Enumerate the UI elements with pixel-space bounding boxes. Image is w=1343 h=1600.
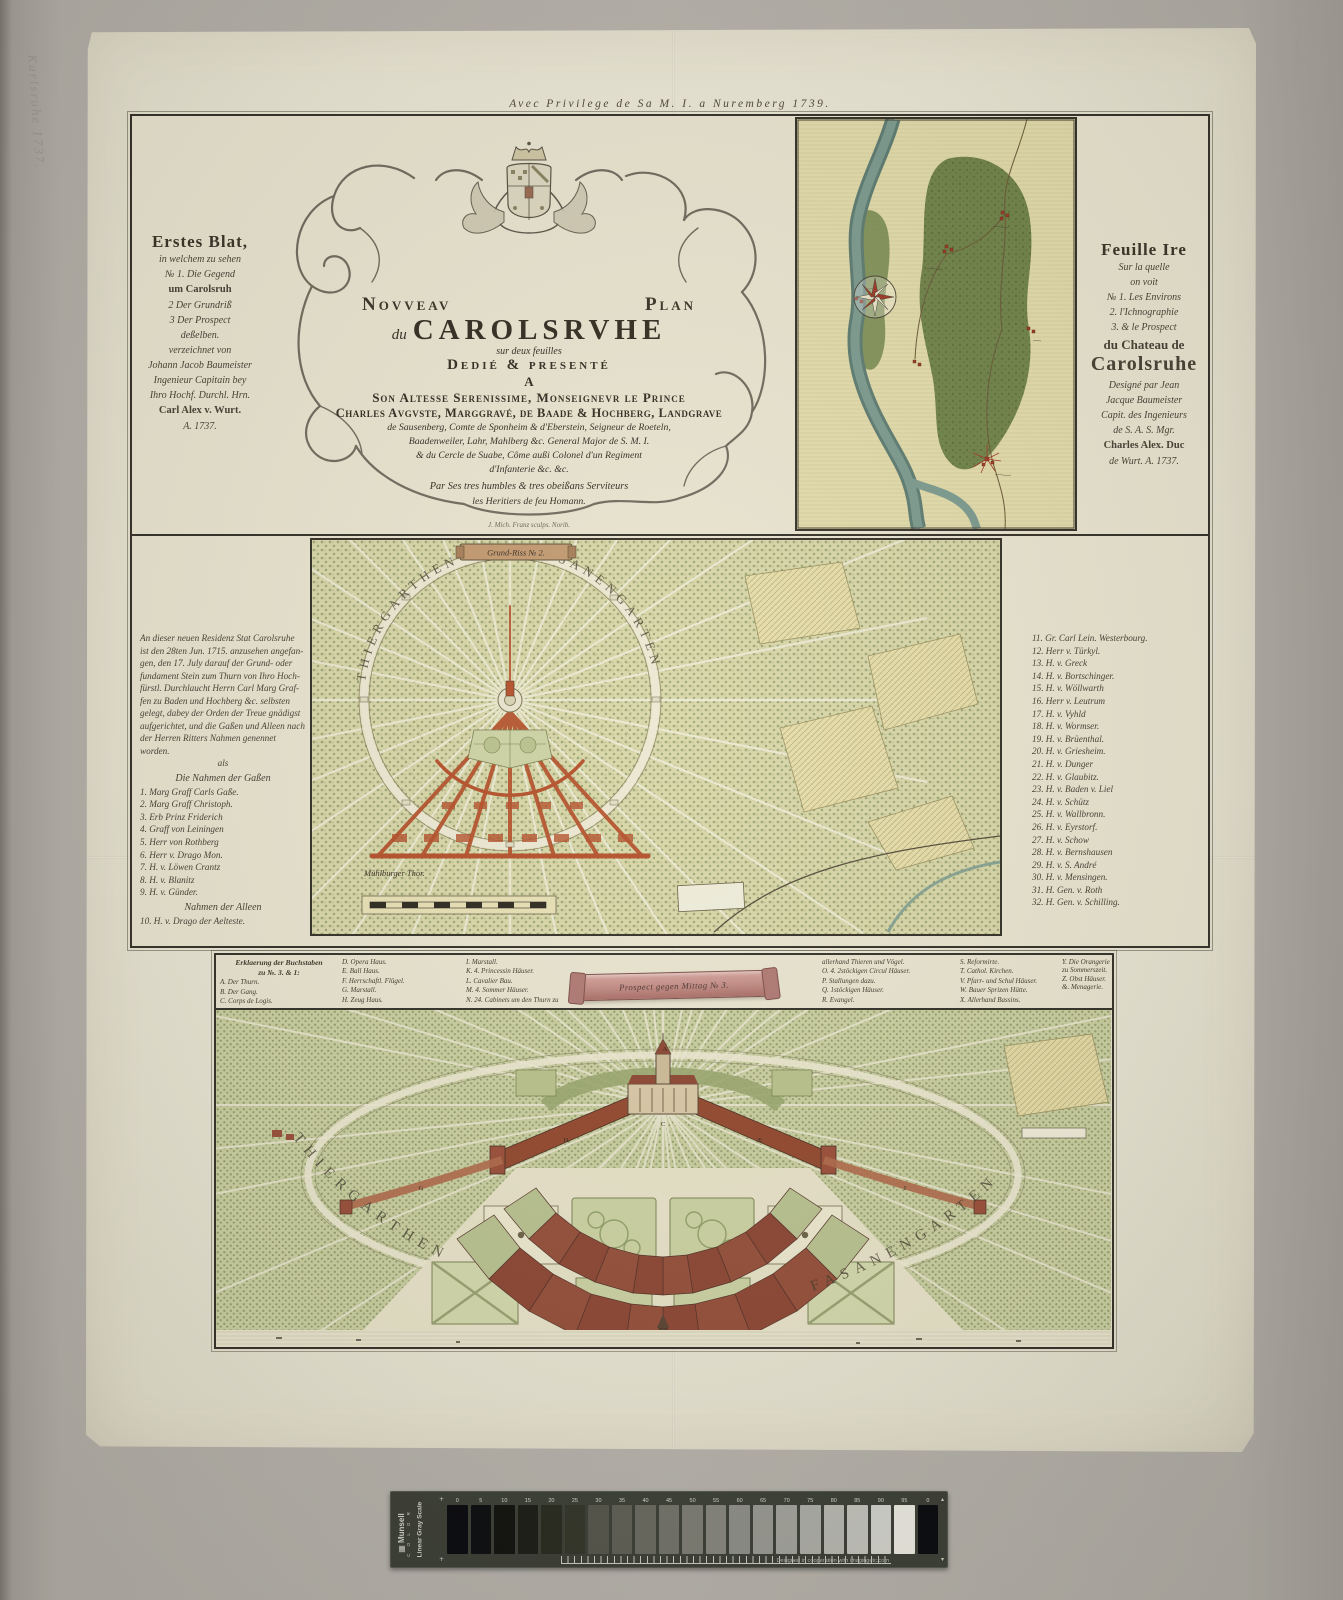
mark-colonnade-right: I — [904, 1185, 906, 1192]
list-item: 6. Herr v. Drago Mon. — [140, 849, 306, 862]
list-item: 15. H. v. Wöllwarth — [1032, 682, 1204, 695]
legend-item: A. Der Thurn. — [220, 978, 338, 987]
note-line: 3. & le Prospect — [1082, 320, 1206, 335]
mark-corps: C — [661, 1121, 665, 1128]
list-item: 18. H. v. Wormser. — [1032, 720, 1204, 733]
orangerie — [1022, 1128, 1086, 1138]
note-line: on voit — [1082, 275, 1206, 290]
legend-item: Q. 1stöckigen Häuser. — [822, 986, 958, 995]
list-item: 2. Marg Graff Christoph. — [140, 798, 306, 811]
credit-line: Designed in cooperation with imagingetc.… — [776, 1558, 889, 1564]
list-item: 28. H. v. Bernshausen — [1032, 846, 1204, 859]
list-item: 25. H. v. Wallbronn. — [1032, 808, 1204, 821]
alley-list-title: Nahmen der Alleen — [140, 902, 306, 913]
ribbon-label: Prospect gegen Mittag № 3. — [619, 979, 729, 992]
list-item: 27. H. v. Schow — [1032, 834, 1204, 847]
engraver-signature: J. Mich. Franz sculps. Norib. — [264, 521, 794, 529]
gray-patch: 80 — [824, 1497, 845, 1554]
note-line: 2 Der Grundriß — [136, 298, 264, 313]
legend-item: B. Der Gang. — [220, 988, 338, 997]
note-line: de S. A. S. Mgr. — [1082, 423, 1206, 438]
list-item: 30. H. v. Mensingen. — [1032, 871, 1204, 884]
privilege-line: Avec Privilege de Sa M. I. a Nuremberg 1… — [130, 98, 1210, 110]
dedication-a: A — [304, 374, 754, 390]
note-line: № 1. Les Environs — [1082, 290, 1206, 305]
legend-title: Erklaerung der Buchstaben — [220, 958, 338, 968]
list-item: 23. H. v. Baden v. Liel — [1032, 783, 1204, 796]
legend-col-5: S. Reformirte. T. Cathol. Kirchen. V. Pf… — [960, 958, 1072, 1005]
list-item: 24. H. v. Schütz — [1032, 796, 1204, 809]
legend-col-1: Erklaerung der Buchstaben zu №. 3. & 1: … — [220, 958, 338, 1006]
list-item: 17. H. v. Vyhld — [1032, 708, 1204, 721]
plan-panel: An dieser neuen Residenz Stat Carolsruhe… — [132, 536, 1208, 944]
legend-item: O. 4. 2stöckigen Circul Häuser. — [822, 967, 958, 976]
legend-item: I. Marstall. — [466, 958, 596, 967]
list-item: 9. H. v. Günder. — [140, 886, 306, 899]
note-line: Johann Jacob Baumeister — [136, 358, 264, 373]
street-list-title: Die Nahmen der Gaßen — [140, 773, 306, 784]
title-du: du — [392, 327, 407, 343]
legend-item: P. Stallungen dazu. — [822, 977, 958, 986]
list-item: 5. Herr von Rothberg — [140, 836, 306, 849]
legend-col-4: allerhand Thieren und Vögel. O. 4. 2stöc… — [822, 958, 958, 1005]
note-line: Charles Alex. Duc — [1082, 438, 1206, 454]
legend-item: G. Marstall. — [342, 986, 462, 995]
mark-colonnade-left: G — [419, 1185, 424, 1192]
note-line: Ihro Hochf. Durchl. Hrn. — [136, 388, 264, 403]
title-panel: Erstes Blat, in welchem zu sehen № 1. Di… — [132, 116, 1208, 536]
left-margin-note: Erstes Blat, in welchem zu sehen № 1. Di… — [136, 232, 264, 434]
note-line: Designé par Jean — [1082, 378, 1206, 393]
note-line: verzeichnet von — [136, 343, 264, 358]
legend-item: H. Zeug Haus. — [342, 996, 462, 1005]
plan-history-note: An dieser neuen Residenz Stat Carolsruhe… — [140, 632, 306, 928]
gray-patch: 40 — [635, 1497, 656, 1554]
plan-banner-label: Grund-Riss № 2. — [487, 548, 545, 558]
pencil-mark — [1286, 16, 1326, 76]
gray-patch: 75 — [800, 1497, 821, 1554]
note-line: № 1. Die Gegend — [136, 267, 264, 282]
list-item: 8. H. v. Blanitz — [140, 874, 306, 887]
note-line: Carl Alex v. Wurt. — [136, 403, 264, 419]
scale-bar — [362, 896, 556, 914]
dedication-titles: Baadenweiler, Lahr, Mahlberg &c. General… — [304, 435, 754, 449]
gray-patch: 25 — [565, 1497, 586, 1554]
legend-col-2: D. Opera Haus. E. Ball Haus. F. Herrscha… — [342, 958, 462, 1005]
note-chateau: du Chateau de — [1082, 337, 1206, 353]
gray-patches: 0 5 10 15 20 25 30 35 40 45 50 55 60 65 … — [447, 1497, 938, 1554]
legend-item: R. Evangel. — [822, 996, 958, 1005]
right-note-title: Feuille Ire — [1082, 240, 1206, 260]
list-item: 13. H. v. Greck — [1032, 657, 1204, 670]
brand-label: Munsell — [397, 1513, 406, 1543]
plan-banner: Grund-Riss № 2. — [456, 544, 576, 560]
legend-item: T. Cathol. Kirchen. — [960, 967, 1072, 976]
prospect-legend: Erklaerung der Buchstaben zu №. 3. & 1: … — [216, 955, 1112, 1010]
gray-patch: 90 — [871, 1497, 892, 1554]
legend-item: C. Corps de Logis. — [220, 997, 338, 1006]
note-line: deßelben. — [136, 328, 264, 343]
list-item: 14. H. v. Bortschinger. — [1032, 670, 1204, 683]
legend-item: E. Ball Haus. — [342, 967, 462, 976]
list-item: 3. Erb Prinz Friderich — [140, 811, 306, 824]
legend-item: W. Bauer Sprizen Hütte. — [960, 986, 1072, 995]
munsell-brand: ▦ Munsell C O L O R — [397, 1498, 411, 1568]
birdseye-prospect: A C D E G I — [216, 1010, 1111, 1346]
plate-frame-lower: Erklaerung der Buchstaben zu №. 3. & 1: … — [214, 953, 1114, 1349]
note-line: 2. l'Ichnographie — [1082, 305, 1206, 320]
list-item: 4. Graff von Leiningen — [140, 823, 306, 836]
intro-line: der Herren Ritters Nahmen genennet worde… — [140, 732, 306, 757]
legend-item: allerhand Thieren und Vögel. — [822, 958, 958, 967]
list-item: 22. H. v. Glaubitz. — [1032, 771, 1204, 784]
title-word-plan: Plan — [645, 294, 696, 316]
map-sheet: Avec Privilege de Sa M. I. a Nuremberg 1… — [86, 28, 1256, 1452]
legend-item: D. Opera Haus. — [342, 958, 462, 967]
gray-patch: 85 — [847, 1497, 868, 1554]
gray-patch: 0 — [447, 1497, 468, 1554]
gray-patch: 5 — [471, 1497, 492, 1554]
list-item: 20. H. v. Griesheim. — [1032, 745, 1204, 758]
list-item: 16. Herr v. Leutrum — [1032, 695, 1204, 708]
legend-item: F. Herrschaftl. Flügel. — [342, 977, 462, 986]
list-item: 21. H. v. Dunger — [1032, 758, 1204, 771]
intro-line: als — [140, 757, 306, 770]
gray-patch: 20 — [541, 1497, 562, 1554]
prospect-title-ribbon: Prospect gegen Mittag № 3. — [577, 970, 772, 1002]
mark-tower: A — [663, 1046, 668, 1053]
note-line: Capit. des Ingenieurs — [1082, 408, 1206, 423]
street-list: 1. Marg Graff Carls Gaße. 2. Marg Graff … — [140, 786, 306, 899]
dedication-titles: de Sausenberg, Comte de Sponheim & d'Ebe… — [304, 421, 754, 435]
list-item: 1. Marg Graff Carls Gaße. — [140, 786, 306, 799]
legend-col-6: Y. Die Orangerie zu Sommerszeit. Z. Obst… — [1062, 958, 1110, 992]
legend-item: X. Allerhand Bassins. — [960, 996, 1072, 1005]
gray-patch: 70 — [776, 1497, 797, 1554]
list-item: 7. H. v. Löwen Crantz — [140, 861, 306, 874]
list-item: 29. H. v. S. André — [1032, 859, 1204, 872]
intro-line: fundament Stein zum Thurn von Ihro Hoch- — [140, 670, 306, 683]
mark-wing-right: E — [758, 1137, 762, 1144]
gray-patch: 35 — [612, 1497, 633, 1554]
gray-patch: 55 — [706, 1497, 727, 1554]
title-carolsruhe: CAROLSRVHE — [413, 314, 667, 346]
gray-patch: 15 — [518, 1497, 539, 1554]
subtitle: sur deux feuilles — [304, 346, 754, 357]
registration-mark: + — [439, 1556, 444, 1563]
legend-item: V. Pfarr- und Schul Häuser. — [960, 977, 1072, 986]
gray-patch: 95 — [894, 1497, 915, 1554]
cartouche-text: Novveav Plan duCAROLSRVHE sur deux feuil… — [304, 294, 754, 508]
plate-frame-upper: Erstes Blat, in welchem zu sehen № 1. Di… — [130, 114, 1210, 948]
gray-scale-label: Linear Gray Scale — [417, 1495, 424, 1565]
dedication-titles: & du Cercle de Suabe, Côme außi Colonel … — [304, 449, 754, 463]
dedication-servants: Par Ses tres humbles & tres obeißans Ser… — [304, 480, 754, 495]
photo-scan: Karlsruhe 1737. Avec Privilege de Sa M. … — [0, 0, 1343, 1600]
list-item: 32. H. Gen. v. Schilling. — [1032, 896, 1204, 909]
small-plaque — [677, 882, 744, 911]
registration-mark: ▴ — [941, 1496, 944, 1503]
legend-item: S. Reformirte. — [960, 958, 1072, 967]
mark-wing-left: D — [564, 1137, 569, 1144]
knights-list: 11. Gr. Carl Lein. Westerbourg. 12. Herr… — [1018, 632, 1204, 909]
legend-item: Z. Obst Häuser. — [1062, 975, 1110, 983]
intro-line: fen zu Baden und Hochberg &c. selbsten — [140, 695, 306, 708]
note-line: in welchem zu sehen — [136, 252, 264, 267]
note-line: 3 Der Prospect — [136, 313, 264, 328]
note-line: um Carolsruh — [136, 282, 264, 298]
right-margin-note: Feuille Ire Sur la quelle on voit № 1. L… — [1082, 240, 1206, 469]
dedication-line: Dedié & presenté — [304, 357, 754, 374]
list-item: 31. H. Gen. v. Roth — [1032, 884, 1204, 897]
dedication-prince: Son Altesse Serenissime, Monseignevr le … — [304, 390, 754, 406]
coat-of-arms — [463, 142, 596, 233]
munsell-logo-icon: ▦ — [397, 1543, 406, 1553]
list-item: 19. H. v. Brüenthal. — [1032, 733, 1204, 746]
note-line: A. 1737. — [136, 419, 264, 434]
foreground — [216, 1330, 1111, 1346]
gate-label: Mühlburger Thor. — [363, 868, 425, 878]
gray-patch: 60 — [729, 1497, 750, 1554]
registration-mark: + — [439, 1496, 444, 1503]
list-item: 10. H. v. Drago der Aelteste. — [140, 915, 306, 928]
gray-patch: 50 — [682, 1497, 703, 1554]
title-word-nouveau: Novveav — [362, 294, 451, 316]
intro-line: fürstl. Durchlaucht Herrn Carl Marg Graf… — [140, 682, 306, 695]
publisher-line: les Heritiers de feu Homann. — [304, 495, 754, 509]
note-line: de Wurt. A. 1737. — [1082, 454, 1206, 469]
list-item: 26. H. v. Eyrstorf. — [1032, 821, 1204, 834]
note-line: Sur la quelle — [1082, 260, 1206, 275]
gray-patch: 10 — [494, 1497, 515, 1554]
dedication-titles: d'Infanterie &c. &c. — [304, 463, 754, 477]
note-line: Ingenieur Capitain bey — [136, 373, 264, 388]
intro-line: aufgerichtet, und die Gaßen und Alleen n… — [140, 720, 306, 733]
legend-subtitle: zu №. 3. & 1: — [220, 968, 338, 978]
intro-line: ist den 28ten Jun. 1715. anzusehen angef… — [140, 645, 306, 658]
legend-item: &. Menagerie. — [1062, 983, 1110, 991]
environs-inset-map — [795, 117, 1077, 531]
gray-patch: 45 — [659, 1497, 680, 1554]
legend-item: Y. Die Orangerie zu Sommerszeit. — [1062, 958, 1110, 975]
gray-patch: 0 — [918, 1497, 939, 1554]
handwritten-note: Karlsruhe 1737. — [24, 54, 48, 170]
list-item: 12. Herr v. Türkyl. — [1032, 645, 1204, 658]
intro-line: gelegt, dabey der Orden der Treue gnädig… — [140, 707, 306, 720]
note-line: Jacque Baumeister — [1082, 393, 1206, 408]
compass-rose — [854, 276, 896, 318]
title-cartouche: Novveav Plan duCAROLSRVHE sur deux feuil… — [264, 116, 794, 533]
list-item: 11. Gr. Carl Lein. Westerbourg. — [1032, 632, 1204, 645]
note-carolsruhe: Carolsruhe — [1082, 353, 1206, 376]
gray-patch: 65 — [753, 1497, 774, 1554]
brand-sub-label: C O L O R — [406, 1498, 411, 1568]
gray-patch: 30 — [588, 1497, 609, 1554]
registration-mark: ▾ — [941, 1556, 944, 1563]
intro-line: gen, den 17. July darauf der Grund- oder — [140, 657, 306, 670]
munsell-gray-scale-bar: ▦ Munsell C O L O R Linear Gray Scale + … — [390, 1491, 948, 1568]
left-note-title: Erstes Blat, — [136, 232, 264, 252]
dedication-charles: Charles Avgvste, Marggravé, de Baade & H… — [304, 406, 754, 421]
intro-line: An dieser neuen Residenz Stat Carolsruhe — [140, 632, 306, 645]
circular-city-plan: THIERGARTHEN FASANENGARTEN Grund-Riss № … — [310, 538, 1002, 936]
